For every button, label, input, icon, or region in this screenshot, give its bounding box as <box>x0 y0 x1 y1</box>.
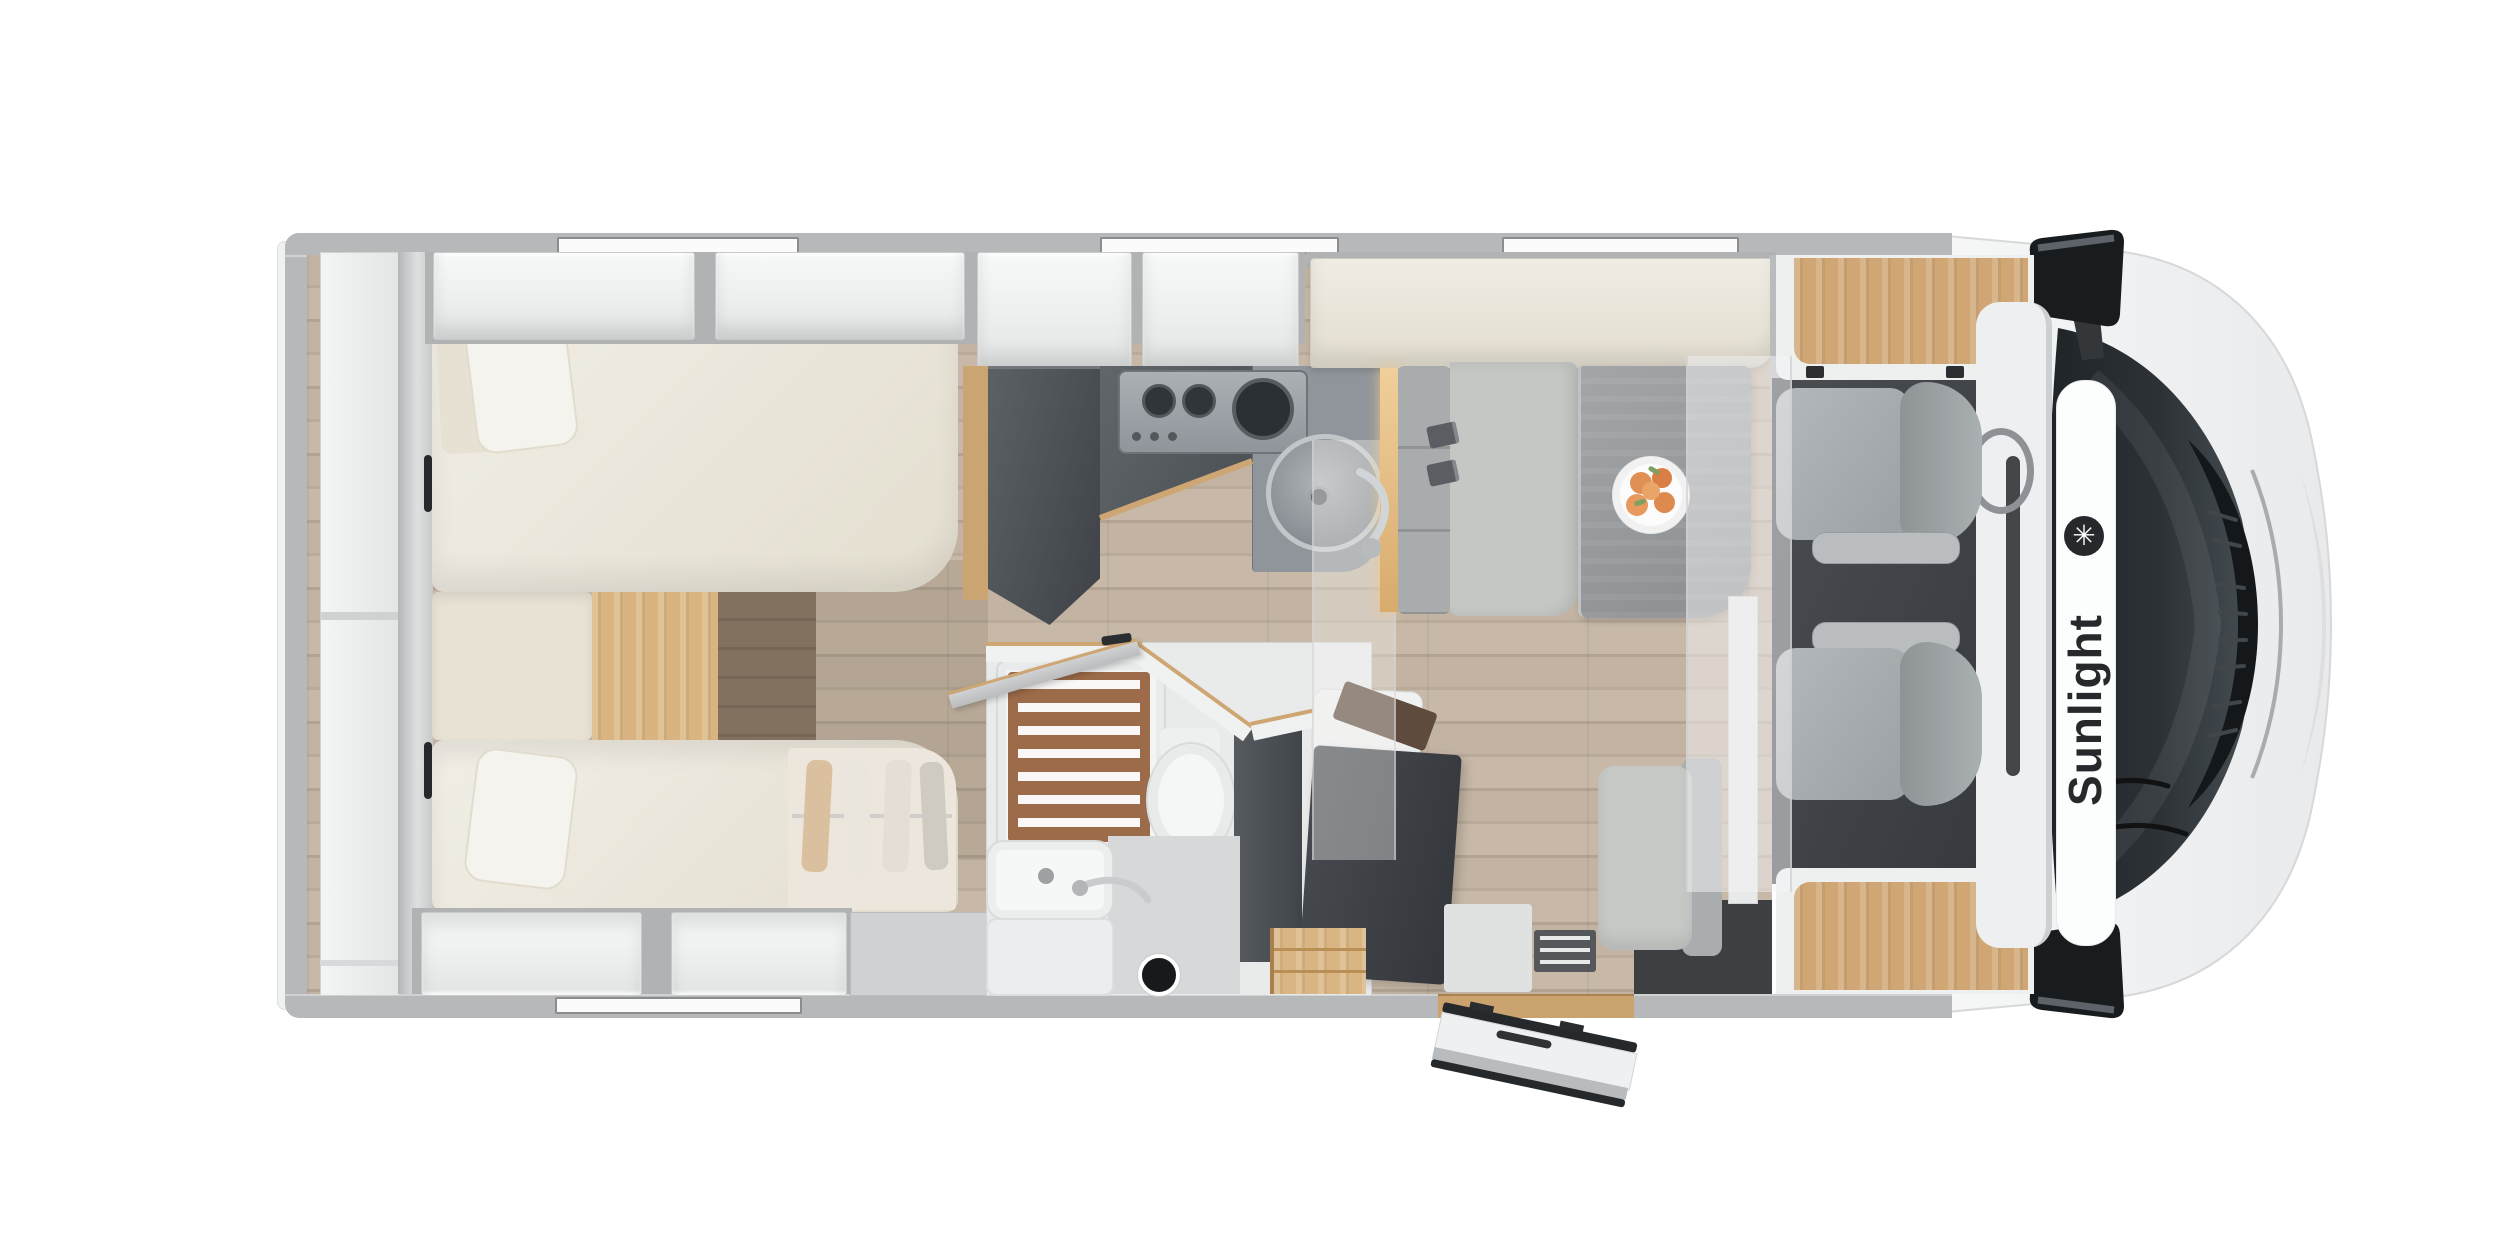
driver-seat-cushion <box>1776 388 1910 540</box>
toilet-roll-holder <box>1138 954 1180 996</box>
shower-slats <box>1018 680 1140 834</box>
brand-name: Sunlight <box>2058 560 2110 860</box>
overhead-locker-top-1 <box>433 252 695 340</box>
basin-drain <box>1038 868 1054 884</box>
shower-grate <box>1008 672 1150 842</box>
dinette-bench-seat <box>1450 362 1578 616</box>
floor-dark-inlay <box>718 592 816 740</box>
hob-knob-1 <box>1132 432 1141 441</box>
washbasin-cabinet <box>986 918 1114 996</box>
between-bed-bench <box>432 592 592 740</box>
bottom-wall-left <box>285 994 1438 1018</box>
rear-wall <box>285 233 307 1016</box>
overhead-locker-bottom-2 <box>671 912 847 996</box>
drawer-seam-1 <box>1274 948 1366 951</box>
bottom-wall-right <box>1634 994 1952 1018</box>
bench-wood-trim <box>1380 368 1398 612</box>
burner-small-2 <box>1182 384 1216 418</box>
wardrobe-handle-1 <box>424 455 432 512</box>
entry-step-drawers <box>1270 928 1366 994</box>
burner-small-1 <box>1142 384 1176 418</box>
passenger-seat-cushion <box>1776 648 1910 800</box>
overhead-locker-top-4 <box>1142 252 1299 368</box>
hob-knob-2 <box>1150 432 1159 441</box>
kitchen-tall-unit <box>988 366 1100 625</box>
dinette-bench-backrest <box>1398 366 1450 614</box>
hob-knob-3 <box>1168 432 1177 441</box>
bathroom-cabinet <box>1234 726 1302 962</box>
underbed-wardrobe <box>788 748 956 910</box>
brand-logo: ✳ <box>2064 516 2104 556</box>
burner-large <box>1232 378 1294 440</box>
side-seat <box>1598 766 1692 950</box>
rear-shelf-seam-1 <box>320 612 398 620</box>
rear-wardrobe-wall <box>398 252 433 994</box>
service-panel <box>850 912 988 996</box>
underbed-wardrobe-veil <box>788 748 956 910</box>
rear-shelf-seam-2 <box>320 960 398 966</box>
belt-anchor-2 <box>1946 366 1964 378</box>
entry-vent <box>1534 930 1596 972</box>
driver-seat-backrest <box>1900 382 1982 546</box>
kitchen-divider-wood <box>963 366 988 600</box>
roof-window-bottom-1 <box>555 997 802 1014</box>
driver-seat-armrest <box>1812 532 1960 564</box>
motorhome-floorplan: ✳ Sunlight <box>0 0 2500 1250</box>
vent-slats <box>1540 936 1590 966</box>
passenger-seat-backrest <box>1900 642 1982 806</box>
brand-logo-glyph: ✳ <box>2072 520 2095 551</box>
dinette-overhead-locker <box>1310 258 1775 368</box>
overhead-locker-bottom-1 <box>421 912 642 996</box>
overhead-locker-top-2 <box>715 252 965 340</box>
wardrobe-handle-2 <box>424 742 432 799</box>
bed-bottom-pillow <box>462 746 580 891</box>
drawer-seam-2 <box>1274 970 1366 973</box>
fruit-5 <box>1642 482 1660 500</box>
rear-storage-shelves <box>320 252 400 996</box>
entry-landing <box>1444 904 1532 992</box>
overhead-locker-top-3 <box>977 252 1132 368</box>
belt-anchor-1 <box>1806 366 1824 378</box>
drop-down-bed-overlay <box>1686 356 1792 892</box>
bed-step <box>592 592 718 740</box>
